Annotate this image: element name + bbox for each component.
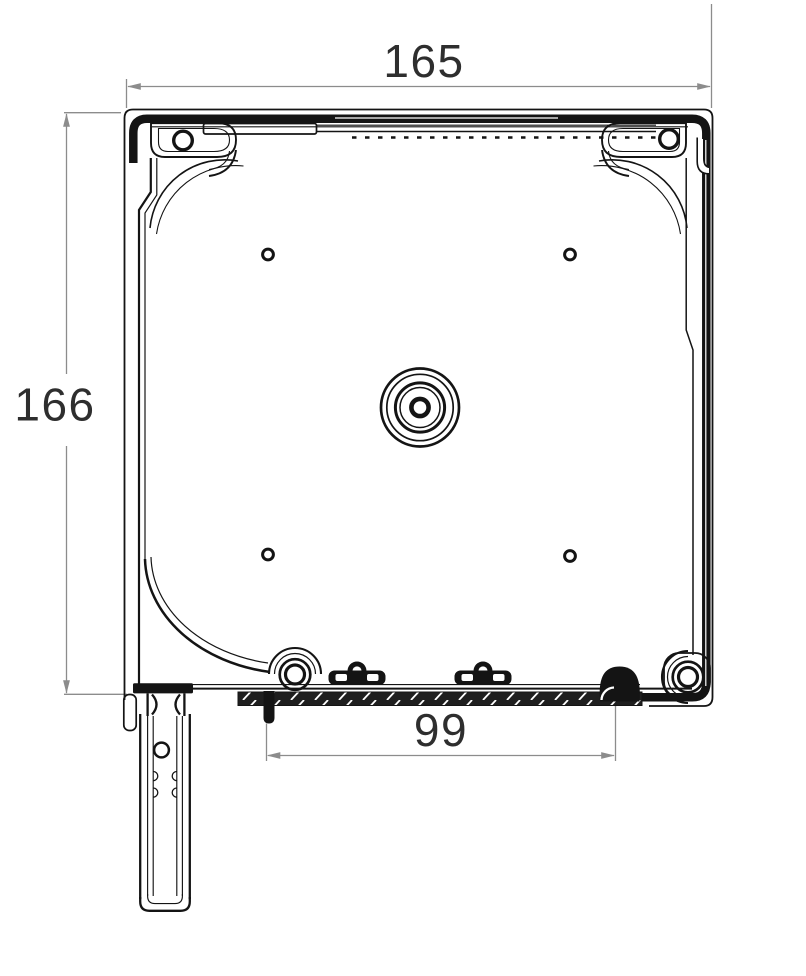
axle-hub — [381, 369, 459, 447]
clip-slot — [336, 674, 348, 681]
boss-arc — [269, 648, 321, 674]
dimension-value-top: 165 — [383, 35, 464, 87]
outer-contour — [125, 110, 713, 707]
screw-hole — [679, 668, 698, 687]
shutter-box-frame — [125, 110, 713, 707]
lid-seal — [600, 667, 640, 702]
arrowhead-left — [267, 752, 281, 759]
mounting-hole — [565, 551, 576, 562]
bracket-inner-line — [159, 129, 230, 152]
guide-arc-outer — [145, 559, 270, 672]
mounting-hole — [263, 249, 274, 260]
lid-clip — [329, 662, 386, 686]
arrowhead-right — [601, 752, 615, 759]
guide-rail — [124, 683, 193, 911]
brush-bump — [172, 788, 177, 797]
brush-pinch — [152, 695, 157, 715]
mounting-hole — [263, 549, 274, 560]
mounting-holes — [263, 249, 576, 561]
inner-corner-arc-tr — [594, 166, 681, 234]
screw-hole — [174, 131, 193, 150]
bracket-fillet — [209, 150, 236, 176]
dimension-top-width: 165 — [127, 4, 712, 108]
screw-boss-bottom-left — [269, 648, 321, 690]
curtain-guide-arc — [145, 557, 270, 672]
lid-hook — [264, 691, 275, 724]
hub-ring — [381, 369, 459, 447]
arrowhead-up — [63, 113, 70, 127]
wall-band — [133, 119, 706, 698]
technical-drawing-canvas: 165 166 99 — [0, 0, 806, 976]
brush-bump — [153, 788, 158, 797]
rail-top-band — [133, 683, 193, 693]
lid-clip — [455, 662, 512, 686]
screw-hole — [286, 665, 305, 684]
clip-slot — [367, 674, 379, 681]
dimension-value-left: 166 — [14, 379, 95, 431]
screw-hole — [660, 130, 679, 149]
arrowhead-down — [63, 680, 70, 694]
shutter-box-drawing: 165 166 99 — [0, 0, 806, 976]
dimension-left-height: 166 — [14, 113, 127, 695]
clip-slot — [493, 674, 505, 681]
hub-ring — [395, 383, 444, 432]
rail-hole — [154, 743, 169, 758]
bracket-fillet — [602, 150, 629, 176]
lid-hatch-strip — [238, 692, 642, 706]
brush-pinch — [176, 695, 181, 715]
wall-stub — [124, 695, 136, 731]
arrowhead-right — [697, 83, 711, 90]
brush-bump — [153, 772, 158, 781]
corner-bracket-top-left — [151, 123, 236, 176]
guide-arc-inner — [151, 557, 268, 663]
clip-slot — [462, 674, 474, 681]
dimension-value-bottom: 99 — [414, 704, 468, 756]
right-wall-step — [686, 158, 693, 655]
seal-dome — [600, 667, 640, 702]
inner-corner-arc-tl — [157, 166, 244, 234]
axle-center — [411, 399, 428, 416]
hub-ring — [400, 388, 440, 428]
brush-bump — [172, 772, 177, 781]
mounting-hole — [565, 249, 576, 260]
arrowhead-left — [127, 83, 141, 90]
